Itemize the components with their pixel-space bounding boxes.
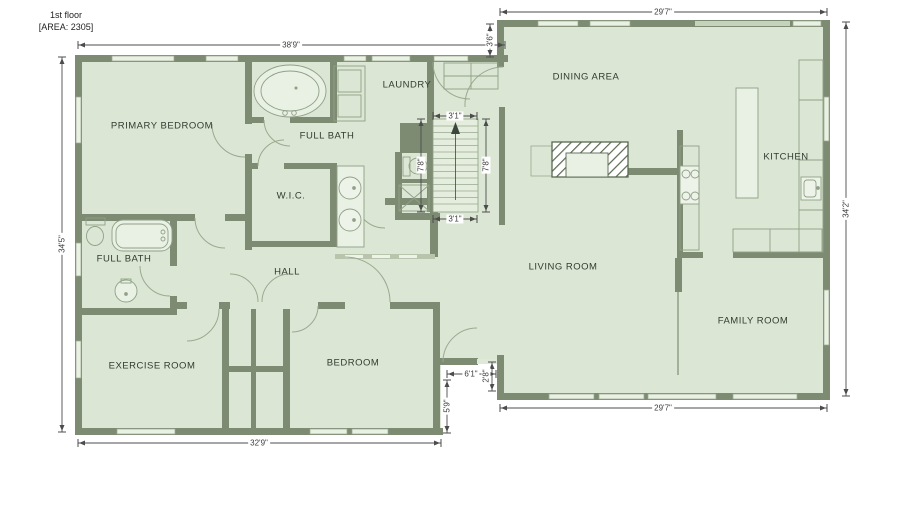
dim-label-entry-depth: 5'9" — [443, 397, 452, 414]
dim-label-stairs-bottom: 3'1" — [446, 215, 463, 224]
room-label-wic: W.I.C. — [277, 191, 306, 202]
hall-railing — [335, 254, 435, 259]
dim-label-stairs-left: 7'8" — [417, 156, 426, 173]
room-label-hall: HALL — [274, 267, 300, 278]
room-label-laundry: LAUNDRY — [383, 80, 432, 91]
dim-label-bottom-right: 29'7" — [652, 404, 674, 413]
kitchen-island — [736, 88, 758, 198]
room-label-full-bath-top: FULL BATH — [300, 131, 355, 142]
dim-label-entry-width: 6'1" — [462, 370, 479, 379]
floor-name: 1st floor — [28, 9, 104, 21]
floor-area: [AREA: 2305] — [28, 21, 104, 33]
room-label-primary-bedroom: PRIMARY BEDROOM — [111, 121, 213, 132]
dim-label-top-left: 38'9" — [280, 41, 302, 50]
dim-label-stairs-right: 7'8" — [482, 156, 491, 173]
dim-label-stairs-top: 3'1" — [446, 112, 463, 121]
room-label-living-room: LIVING ROOM — [529, 262, 598, 273]
primary-bath-tub — [254, 65, 326, 117]
dim-label-right-side: 34'2" — [842, 198, 851, 220]
dim-label-bottom-left: 32'9" — [248, 439, 270, 448]
dim-label-dining-step: 3'6" — [486, 31, 495, 48]
room-label-family-room: FAMILY ROOM — [718, 316, 789, 327]
room-label-bedroom: BEDROOM — [327, 358, 380, 369]
dim-label-top-right: 29'7" — [652, 8, 674, 17]
dim-label-entry-jog: 2'8" — [482, 367, 491, 384]
dim-label-left-side: 34'5" — [58, 233, 67, 255]
room-label-full-bath-left: FULL BATH — [97, 254, 152, 265]
room-label-exercise-room: EXERCISE ROOM — [109, 361, 196, 372]
floor-plan: 1st floor [AREA: 2305] — [0, 0, 900, 529]
floor-plan-drawing — [0, 0, 900, 529]
room-label-dining-area: DINING AREA — [553, 72, 620, 83]
room-label-kitchen: KITCHEN — [763, 152, 808, 163]
plan-title: 1st floor [AREA: 2305] — [28, 9, 104, 33]
stairs — [433, 119, 478, 212]
